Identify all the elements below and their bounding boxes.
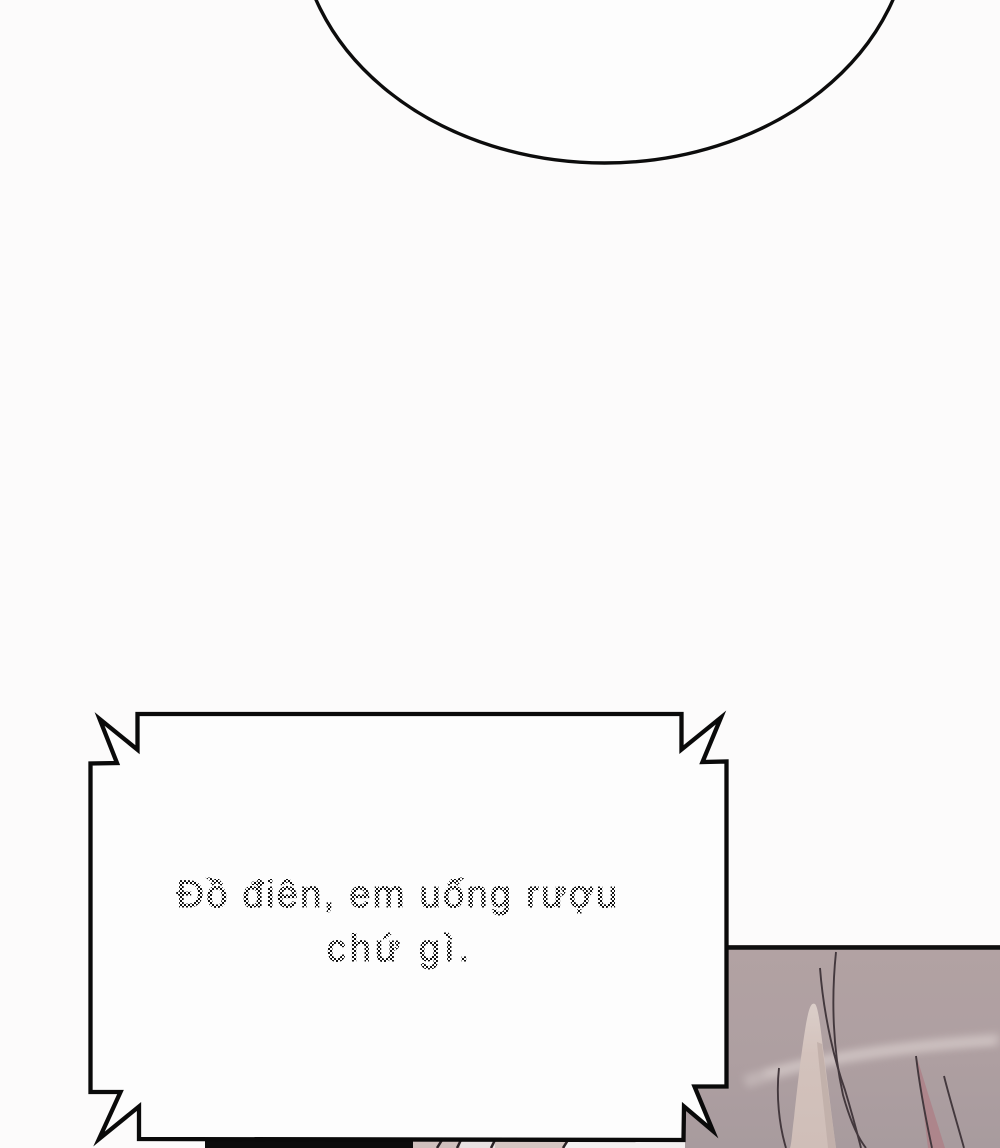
- svg-text:chứ gì.: chứ gì.: [327, 928, 473, 970]
- svg-text:Đồ điên, em uống rượu: Đồ điên, em uống rượu: [177, 874, 620, 916]
